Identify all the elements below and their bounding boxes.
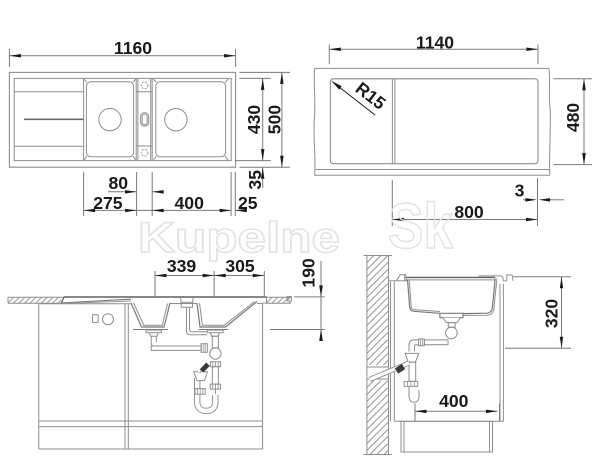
svg-text:1140: 1140: [416, 33, 454, 53]
svg-text:430: 430: [244, 105, 264, 135]
svg-text:275: 275: [93, 193, 123, 213]
svg-text:400: 400: [439, 391, 469, 411]
svg-text:320: 320: [541, 299, 561, 329]
svg-text:25: 25: [238, 193, 258, 213]
svg-text:80: 80: [109, 173, 129, 193]
svg-text:339: 339: [167, 256, 197, 276]
svg-text:400: 400: [175, 193, 205, 213]
svg-text:800: 800: [454, 202, 484, 222]
svg-text:35: 35: [245, 170, 265, 190]
svg-text:480: 480: [563, 103, 583, 133]
svg-text:1160: 1160: [114, 38, 152, 58]
svg-text:Kupelne: Kupelne: [138, 214, 340, 262]
svg-text:Sk: Sk: [388, 190, 453, 262]
svg-text:305: 305: [225, 256, 255, 276]
svg-text:190: 190: [299, 258, 319, 288]
svg-text:3: 3: [515, 181, 525, 201]
svg-text:500: 500: [264, 105, 284, 135]
